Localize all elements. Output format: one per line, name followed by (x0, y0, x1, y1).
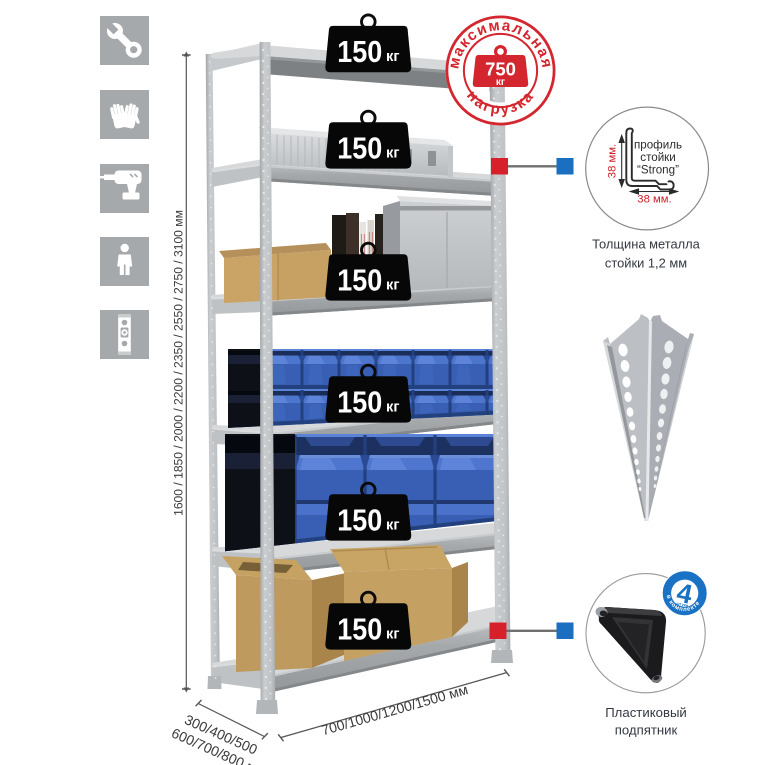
svg-text:38 мм.: 38 мм. (637, 194, 671, 206)
svg-text:Пластиковый: Пластиковый (605, 705, 687, 720)
svg-text:кг: кг (386, 518, 400, 534)
svg-text:Толщина металла: Толщина металла (592, 237, 701, 252)
svg-text:38 мм.: 38 мм. (607, 144, 619, 178)
svg-text:150: 150 (337, 503, 382, 538)
svg-text:“Strong”: “Strong” (637, 164, 679, 177)
svg-text:кг: кг (386, 278, 400, 294)
svg-text:150: 150 (337, 612, 382, 647)
svg-text:1600 / 1850 / 2000 / 2200 / 23: 1600 / 1850 / 2000 / 2200 / 2350 / 2550 … (172, 210, 186, 516)
svg-text:кг: кг (386, 146, 400, 162)
svg-text:стойки 1,2 мм: стойки 1,2 мм (605, 256, 687, 271)
svg-text:150: 150 (337, 34, 382, 69)
svg-text:150: 150 (337, 263, 382, 298)
svg-text:150: 150 (337, 131, 382, 166)
svg-text:кг: кг (496, 77, 505, 88)
svg-text:кг: кг (386, 400, 400, 416)
svg-text:150: 150 (337, 385, 382, 420)
svg-text:стойки: стойки (640, 151, 675, 164)
svg-text:профиль: профиль (634, 139, 682, 152)
svg-text:кг: кг (386, 49, 400, 65)
svg-text:подпятник: подпятник (615, 723, 678, 738)
svg-text:кг: кг (386, 627, 400, 643)
